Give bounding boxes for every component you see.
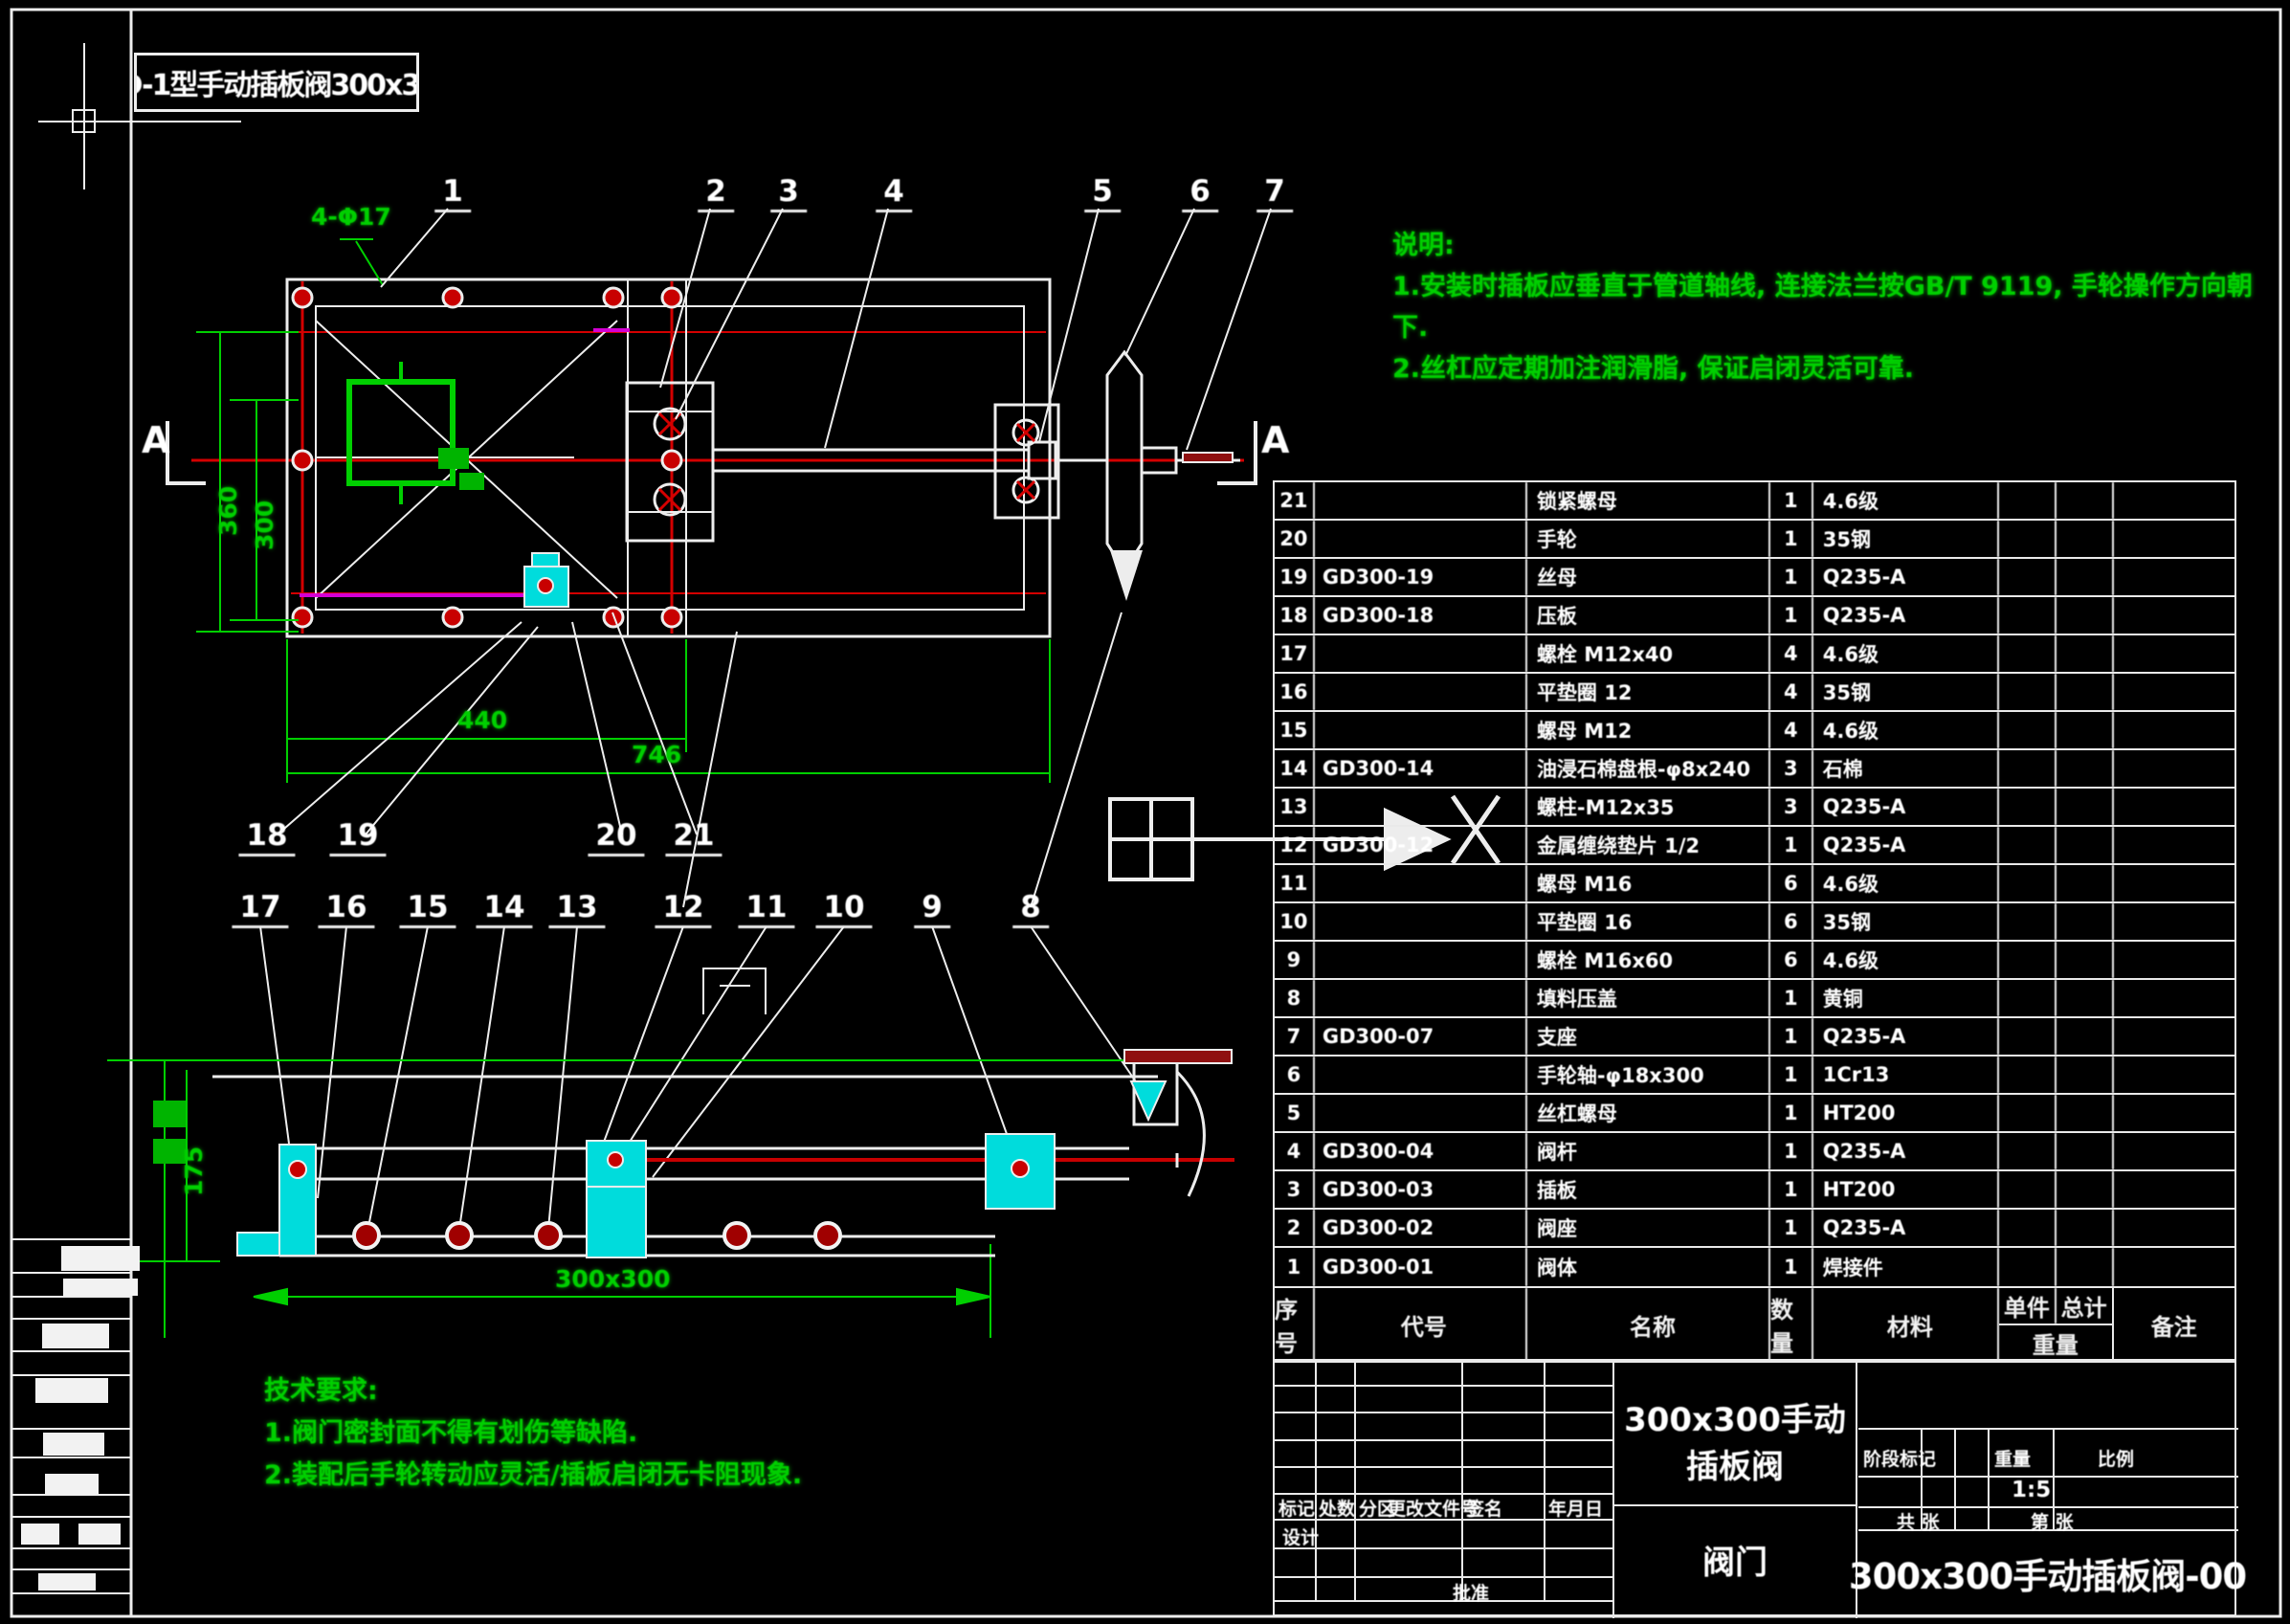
bom-cell-code <box>1315 635 1527 672</box>
bom-cell-total <box>2057 712 2114 748</box>
note-line: 说明: <box>1392 225 2253 266</box>
bom-cell-code: GD300-04 <box>1315 1133 1527 1169</box>
bom-cell-unit <box>1999 1133 2057 1169</box>
bom-row-14: 14GD300-14油浸石棉盘根-φ8x2403石棉 <box>1275 750 2234 789</box>
bom-cell-name: 金属缠绕垫片 1/2 <box>1527 827 1770 863</box>
bom-cell-total <box>2057 1095 2114 1131</box>
bom-cell-total <box>2057 559 2114 595</box>
bom-header-weight-group: 单件 总计 重量 <box>1999 1288 2114 1361</box>
bom-cell-qty: 1 <box>1770 1133 1813 1169</box>
bom-cell-seq: 19 <box>1275 559 1315 595</box>
bom-cell-unit <box>1999 1210 2057 1246</box>
part-callout-14: 14 <box>476 890 532 928</box>
bom-cell-unit <box>1999 827 2057 863</box>
notes-top-right: 说明:1.安装时插板应垂直于管道轴线, 连接法兰按GB/T 9119, 手轮操作… <box>1392 225 2253 389</box>
bom-row-11: 11螺母 M1664.6级 <box>1275 865 2234 903</box>
bom-cell-mat: 4.6级 <box>1813 942 1999 978</box>
revision-label: 年月日 <box>1548 1495 1603 1521</box>
bom-row-16: 16平垫圈 12435钢 <box>1275 674 2234 712</box>
scale-value: 1:5 <box>2012 1478 2051 1502</box>
bom-cell-name: 平垫圈 12 <box>1527 674 1770 710</box>
bom-cell-mat: 焊接件 <box>1813 1248 1999 1286</box>
bom-cell-name: 手轮 <box>1527 521 1770 557</box>
margin-block <box>78 1524 121 1545</box>
drawing-code-label: GD-1型手动插板阀300x300 <box>134 61 419 103</box>
bom-cell-seq: 15 <box>1275 712 1315 748</box>
bom-cell-qty: 1 <box>1770 827 1813 863</box>
revision-label: 标记 <box>1278 1495 1315 1521</box>
bom-row-21: 21锁紧螺母14.6级 <box>1275 482 2234 521</box>
bom-cell-remark <box>2114 789 2234 825</box>
bom-header-unit: 单件 <box>1999 1288 2057 1324</box>
bom-cell-code: GD300-14 <box>1315 750 1527 787</box>
center-gland-cyan <box>587 1141 646 1257</box>
bom-cell-mat: 35钢 <box>1813 903 1999 940</box>
bom-header-seq: 序号 <box>1275 1288 1315 1361</box>
bom-cell-unit <box>1999 942 2057 978</box>
dim-section-width: 300x300 <box>555 1265 671 1293</box>
bom-cell-mat: 4.6级 <box>1813 635 1999 672</box>
bom-cell-name: 阀杆 <box>1527 1133 1770 1169</box>
note-line: 1.阀门密封面不得有划伤等缺陷. <box>264 1413 802 1455</box>
bom-cell-remark <box>2114 865 2234 901</box>
bom-cell-remark <box>2114 1248 2234 1286</box>
bom-cell-remark <box>2114 1171 2234 1208</box>
margin-block <box>43 1433 104 1456</box>
bom-cell-total <box>2057 597 2114 634</box>
margin-block <box>35 1378 108 1403</box>
bom-cell-seq: 21 <box>1275 482 1315 519</box>
bom-cell-remark <box>2114 942 2234 978</box>
bom-cell-unit <box>1999 1248 2057 1286</box>
bom-row-3: 3GD300-03插板1HT200 <box>1275 1171 2234 1210</box>
plan-dimensions <box>196 239 1050 783</box>
bom-row-9: 9螺栓 M16x6064.6级 <box>1275 942 2234 980</box>
bom-header-name: 名称 <box>1527 1288 1770 1361</box>
product-subtitle: 阀门 <box>1614 1509 1856 1610</box>
bom-row-17: 17螺栓 M12x4044.6级 <box>1275 635 2234 674</box>
bom-cell-seq: 4 <box>1275 1133 1315 1169</box>
bom-cell-qty: 4 <box>1770 712 1813 748</box>
part-callout-7: 7 <box>1256 174 1293 212</box>
bom-cell-name: 螺母 M12 <box>1527 712 1770 748</box>
note-line: 1.安装时插板应垂直于管道轴线, 连接法兰按GB/T 9119, 手轮操作方向朝 <box>1392 266 2253 307</box>
bom-cell-qty: 1 <box>1770 559 1813 595</box>
bom-cell-name: 螺栓 M16x60 <box>1527 942 1770 978</box>
product-title: 300x300手动插板阀 <box>1614 1378 1856 1502</box>
section-label-a-left: A <box>142 419 169 461</box>
bom-cell-qty: 6 <box>1770 942 1813 978</box>
bom-cell-seq: 1 <box>1275 1248 1315 1286</box>
bom-cell-total <box>2057 903 2114 940</box>
bom-cell-name: 螺柱-M12x35 <box>1527 789 1770 825</box>
bom-cell-mat: 黄铜 <box>1813 980 1999 1016</box>
bom-header-row: 序号 代号 名称 数量 材料 单件 总计 重量 备注 <box>1275 1286 2234 1361</box>
right-support-cyan <box>986 1134 1055 1209</box>
note-line: 技术要求: <box>264 1370 802 1413</box>
bom-cell-seq: 7 <box>1275 1018 1315 1055</box>
bom-cell-code: GD300-01 <box>1315 1248 1527 1286</box>
bom-cell-code <box>1315 789 1527 825</box>
bom-cell-unit <box>1999 980 2057 1016</box>
bom-cell-mat: Q235-A <box>1813 597 1999 634</box>
part-callout-4: 4 <box>876 174 912 212</box>
bom-cell-code: GD300-03 <box>1315 1171 1527 1208</box>
bom-cell-unit <box>1999 1095 2057 1131</box>
cad-drawing-sheet: GD-1型手动插板阀300x300 说明:1.安装时插板应垂直于管道轴线, 连接… <box>0 0 2290 1624</box>
part-callout-5: 5 <box>1084 174 1121 212</box>
bom-row-6: 6手轮轴-φ18x30011Cr13 <box>1275 1057 2234 1095</box>
bom-cell-mat: Q235-A <box>1813 1133 1999 1169</box>
bom-cell-remark <box>2114 674 2234 710</box>
bom-row-13: 13螺柱-M12x353Q235-A <box>1275 789 2234 827</box>
notes-bottom-left: 技术要求:1.阀门密封面不得有划伤等缺陷.2.装配后手轮转动应灵活/插板启闭无卡… <box>264 1370 802 1497</box>
bom-cell-unit <box>1999 903 2057 940</box>
seat-opening-green <box>349 362 484 504</box>
dim-top-width: 440 <box>457 706 507 734</box>
bom-cell-remark <box>2114 1057 2234 1093</box>
bom-cell-seq: 16 <box>1275 674 1315 710</box>
bom-cell-total <box>2057 1133 2114 1169</box>
bom-cell-code <box>1315 482 1527 519</box>
part-callout-8: 8 <box>1012 890 1049 928</box>
bom-header-remark: 备注 <box>2114 1288 2234 1361</box>
bom-cell-code: GD300-02 <box>1315 1210 1527 1246</box>
bom-row-7: 7GD300-07支座1Q235-A <box>1275 1018 2234 1057</box>
section-handwheel <box>1124 1050 1232 1196</box>
bom-cell-name: 填料压盖 <box>1527 980 1770 1016</box>
note-line: 2.丝杠应定期加注润滑脂, 保证启闭灵活可靠. <box>1392 348 2253 389</box>
part-callout-9: 9 <box>914 890 950 928</box>
part-callout-21: 21 <box>665 818 722 856</box>
bom-cell-seq: 11 <box>1275 865 1315 901</box>
bom-cell-remark <box>2114 597 2234 634</box>
bom-cell-code <box>1315 865 1527 901</box>
note-line: 下. <box>1392 307 2253 348</box>
bom-cell-code <box>1315 942 1527 978</box>
note-line: 2.装配后手轮转动应灵活/插板启闭无卡阻现象. <box>264 1455 802 1497</box>
bom-cell-qty: 1 <box>1770 482 1813 519</box>
bom-cell-qty: 1 <box>1770 1210 1813 1246</box>
weight-label: 重量 <box>1994 1445 2031 1471</box>
bom-cell-seq: 3 <box>1275 1171 1315 1208</box>
bom-cell-mat: 4.6级 <box>1813 712 1999 748</box>
drawing-code-box: GD-1型手动插板阀300x300 <box>134 53 419 112</box>
bom-cell-unit <box>1999 559 2057 595</box>
part-callout-15: 15 <box>399 890 456 928</box>
bom-cell-remark <box>2114 827 2234 863</box>
bom-cell-name: 支座 <box>1527 1018 1770 1055</box>
bom-row-8: 8填料压盖1黄铜 <box>1275 980 2234 1018</box>
bom-cell-code: GD300-07 <box>1315 1018 1527 1055</box>
bom-cell-seq: 13 <box>1275 789 1315 825</box>
margin-block <box>63 1279 138 1296</box>
part-callout-13: 13 <box>548 890 605 928</box>
bom-cell-remark <box>2114 1095 2234 1131</box>
bom-cell-name: 螺母 M16 <box>1527 865 1770 901</box>
bom-row-20: 20手轮135钢 <box>1275 521 2234 559</box>
bom-cell-remark <box>2114 1133 2234 1169</box>
bom-cell-seq: 9 <box>1275 942 1315 978</box>
bom-cell-remark <box>2114 1018 2234 1055</box>
bom-cell-qty: 6 <box>1770 865 1813 901</box>
bom-cell-qty: 1 <box>1770 1057 1813 1093</box>
bom-cell-unit <box>1999 635 2057 672</box>
handwheel <box>1056 352 1240 601</box>
bom-cell-qty: 1 <box>1770 597 1813 634</box>
bom-cell-seq: 8 <box>1275 980 1315 1016</box>
bom-cell-unit <box>1999 750 2057 787</box>
bom-cell-mat: Q235-A <box>1813 789 1999 825</box>
bom-cell-seq: 20 <box>1275 521 1315 557</box>
bom-cell-unit <box>1999 789 2057 825</box>
bom-cell-mat: HT200 <box>1813 1171 1999 1208</box>
bom-cell-total <box>2057 789 2114 825</box>
bom-cell-remark <box>2114 559 2234 595</box>
bom-row-10: 10平垫圈 16635钢 <box>1275 903 2234 942</box>
bom-cell-unit <box>1999 521 2057 557</box>
bom-row-2: 2GD300-02阀座1Q235-A <box>1275 1210 2234 1248</box>
sheet-count-label: 共 张 <box>1897 1508 1940 1534</box>
bom-cell-mat: 35钢 <box>1813 521 1999 557</box>
bom-cell-total <box>2057 1210 2114 1246</box>
part-callout-16: 16 <box>318 890 374 928</box>
bom-cell-mat: HT200 <box>1813 1095 1999 1131</box>
bom-cell-qty: 4 <box>1770 635 1813 672</box>
revision-label: 签名 <box>1466 1495 1502 1521</box>
bom-cell-name: 手轮轴-φ18x300 <box>1527 1057 1770 1093</box>
bom-row-19: 19GD300-19丝母1Q235-A <box>1275 559 2234 597</box>
part-callout-17: 17 <box>232 890 288 928</box>
bom-cell-seq: 10 <box>1275 903 1315 940</box>
bom-cell-code: GD300-19 <box>1315 559 1527 595</box>
bom-cell-qty: 1 <box>1770 980 1813 1016</box>
bom-cell-total <box>2057 827 2114 863</box>
part-callout-20: 20 <box>588 818 644 856</box>
bom-cell-unit <box>1999 674 2057 710</box>
dim-flange-holes: 4-Φ17 <box>311 203 391 231</box>
sheet-index-label: 第 张 <box>2031 1508 2074 1534</box>
gate-stop-cyan <box>524 553 568 607</box>
bom-cell-name: 平垫圈 16 <box>1527 903 1770 940</box>
bom-cell-total <box>2057 750 2114 787</box>
bom-cell-code <box>1315 1057 1527 1093</box>
design-label: 设计 <box>1282 1524 1319 1549</box>
bom-cell-seq: 18 <box>1275 597 1315 634</box>
bom-cell-mat: 1Cr13 <box>1813 1057 1999 1093</box>
margin-block <box>45 1474 99 1495</box>
bom-cell-total <box>2057 674 2114 710</box>
bom-cell-total <box>2057 482 2114 519</box>
bom-cell-qty: 1 <box>1770 1018 1813 1055</box>
section-arrow <box>1110 550 1143 601</box>
bom-cell-code <box>1315 712 1527 748</box>
bom-cell-code: GD300-12 <box>1315 827 1527 863</box>
bom-cell-unit <box>1999 1018 2057 1055</box>
bom-cell-mat: Q235-A <box>1813 1210 1999 1246</box>
part-callout-6: 6 <box>1182 174 1218 212</box>
bom-cell-qty: 1 <box>1770 521 1813 557</box>
bom-cell-mat: 35钢 <box>1813 674 1999 710</box>
bom-row-15: 15螺母 M1244.6级 <box>1275 712 2234 750</box>
drawing-number: 300x300手动插板阀-00 <box>1858 1531 2236 1615</box>
bom-cell-qty: 3 <box>1770 750 1813 787</box>
bom-cell-code <box>1315 521 1527 557</box>
margin-block <box>38 1573 96 1591</box>
bom-cell-seq: 2 <box>1275 1210 1315 1246</box>
bom-rows: 21锁紧螺母14.6级20手轮135钢19GD300-19丝母1Q235-A18… <box>1275 482 2234 1286</box>
bom-cell-unit <box>1999 712 2057 748</box>
bom-cell-qty: 1 <box>1770 1171 1813 1208</box>
bom-table: 21锁紧螺母14.6级20手轮135钢19GD300-19丝母1Q235-A18… <box>1273 480 2236 1363</box>
bom-cell-total <box>2057 521 2114 557</box>
bom-cell-total <box>2057 865 2114 901</box>
bom-cell-name: 螺栓 M12x40 <box>1527 635 1770 672</box>
revision-label: 更改文件号 <box>1388 1495 1478 1521</box>
bom-cell-name: 阀座 <box>1527 1210 1770 1246</box>
bom-cell-qty: 3 <box>1770 789 1813 825</box>
part-callout-3: 3 <box>770 174 807 212</box>
bom-cell-remark <box>2114 482 2234 519</box>
bom-cell-unit <box>1999 865 2057 901</box>
bom-cell-total <box>2057 1171 2114 1208</box>
bom-cell-total <box>2057 635 2114 672</box>
part-callout-1: 1 <box>434 174 471 212</box>
bom-cell-name: 油浸石棉盘根-φ8x240 <box>1527 750 1770 787</box>
approve-label: 批准 <box>1453 1579 1489 1605</box>
section-view <box>107 1050 1234 1338</box>
bom-row-4: 4GD300-04阀杆1Q235-A <box>1275 1133 2234 1171</box>
bom-cell-total <box>2057 1018 2114 1055</box>
margin-block <box>61 1246 140 1271</box>
bom-cell-mat: 4.6级 <box>1813 482 1999 519</box>
bom-cell-unit <box>1999 1057 2057 1093</box>
bom-cell-seq: 14 <box>1275 750 1315 787</box>
bom-cell-code <box>1315 903 1527 940</box>
bom-cell-seq: 5 <box>1275 1095 1315 1131</box>
bom-row-18: 18GD300-18压板1Q235-A <box>1275 597 2234 635</box>
bom-cell-total <box>2057 1057 2114 1093</box>
bom-cell-total <box>2057 980 2114 1016</box>
bom-cell-mat: Q235-A <box>1813 1018 1999 1055</box>
title-block: 标记处数分区更改文件号签名年月日 设计 批准 阶段标记 重量 比例 1:5 共 … <box>1273 1359 2236 1616</box>
bom-cell-name: 丝杠螺母 <box>1527 1095 1770 1131</box>
bom-cell-remark <box>2114 1210 2234 1246</box>
bom-cell-qty: 1 <box>1770 1248 1813 1286</box>
bom-cell-code <box>1315 980 1527 1016</box>
bom-cell-unit <box>1999 482 2057 519</box>
bom-cell-remark <box>2114 980 2234 1016</box>
margin-block <box>21 1524 59 1545</box>
bom-header-mat: 材料 <box>1813 1288 1999 1361</box>
bom-row-5: 5丝杠螺母1HT200 <box>1275 1095 2234 1133</box>
bom-cell-mat: Q235-A <box>1813 827 1999 863</box>
bom-cell-name: 锁紧螺母 <box>1527 482 1770 519</box>
part-callout-12: 12 <box>655 890 711 928</box>
dim-top-height-inner: 300 <box>251 501 278 550</box>
bom-row-12: 12GD300-12金属缠绕垫片 1/21Q235-A <box>1275 827 2234 865</box>
bom-cell-mat: 4.6级 <box>1813 865 1999 901</box>
bom-cell-mat: 石棉 <box>1813 750 1999 787</box>
revision-label: 处数 <box>1319 1495 1355 1521</box>
bom-cell-qty: 6 <box>1770 903 1813 940</box>
dim-top-height-outer: 360 <box>214 486 242 536</box>
part-callout-2: 2 <box>698 174 734 212</box>
bom-cell-total <box>2057 1248 2114 1286</box>
bom-cell-mat: Q235-A <box>1813 559 1999 595</box>
margin-block <box>42 1324 109 1348</box>
bom-cell-name: 阀体 <box>1527 1248 1770 1286</box>
dim-top-total: 746 <box>632 741 681 768</box>
bom-cell-remark <box>2114 521 2234 557</box>
bom-cell-seq: 12 <box>1275 827 1315 863</box>
bom-cell-qty: 4 <box>1770 674 1813 710</box>
bom-cell-unit <box>1999 1171 2057 1208</box>
part-callout-10: 10 <box>815 890 872 928</box>
dim-section-height: 175 <box>180 1146 208 1196</box>
plan-view <box>167 239 1256 783</box>
bom-cell-remark <box>2114 712 2234 748</box>
bom-cell-code <box>1315 1095 1527 1131</box>
section-label-a-right: A <box>1261 419 1289 461</box>
bom-header-weight: 重量 <box>1999 1325 2112 1361</box>
bom-row-1: 1GD300-01阀体1焊接件 <box>1275 1248 2234 1286</box>
bom-cell-seq: 17 <box>1275 635 1315 672</box>
part-callout-11: 11 <box>738 890 794 928</box>
bom-cell-qty: 1 <box>1770 1095 1813 1131</box>
bom-cell-remark <box>2114 750 2234 787</box>
bom-cell-remark <box>2114 635 2234 672</box>
bom-cell-code: GD300-18 <box>1315 597 1527 634</box>
part-callout-19: 19 <box>329 818 386 856</box>
scale-label: 比例 <box>2098 1445 2134 1471</box>
stage-label: 阶段标记 <box>1863 1445 1936 1471</box>
bom-cell-unit <box>1999 597 2057 634</box>
bom-header-total: 总计 <box>2057 1288 2112 1324</box>
bom-cell-total <box>2057 942 2114 978</box>
bom-cell-name: 丝母 <box>1527 559 1770 595</box>
bom-cell-seq: 6 <box>1275 1057 1315 1093</box>
bom-header-qty: 数量 <box>1770 1288 1813 1361</box>
bom-cell-name: 压板 <box>1527 597 1770 634</box>
bom-cell-remark <box>2114 903 2234 940</box>
left-flange-cyan <box>237 1145 316 1256</box>
bom-cell-code <box>1315 674 1527 710</box>
bom-cell-name: 插板 <box>1527 1171 1770 1208</box>
bom-header-code: 代号 <box>1315 1288 1527 1361</box>
part-callout-18: 18 <box>238 818 295 856</box>
